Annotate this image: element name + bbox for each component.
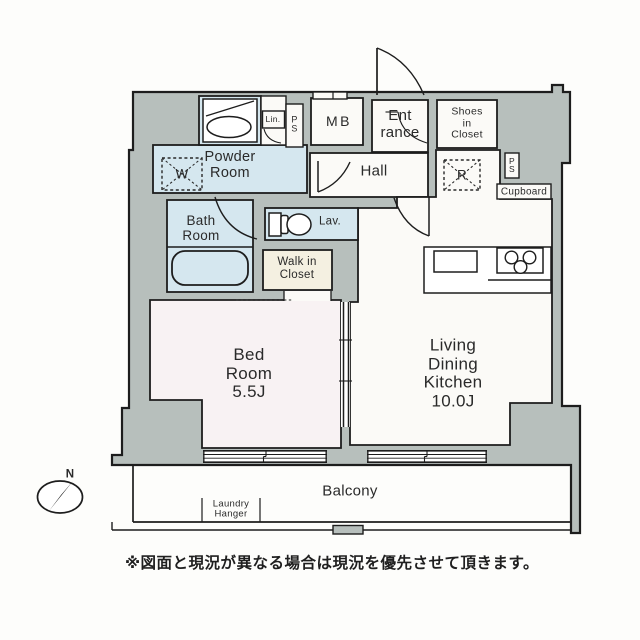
bathtub [172, 251, 248, 285]
label-meter-box: MB [326, 114, 352, 130]
window-ldk [367, 450, 487, 463]
label-washer: W [175, 166, 188, 181]
burner [514, 261, 527, 274]
label-bed-room: Bed Room 5.5J [226, 346, 273, 402]
label-linen: Lin. [266, 115, 281, 125]
label-powder-room: Powder Room [205, 149, 256, 181]
window-bedroom [203, 450, 327, 463]
kitchen-counter [424, 247, 551, 293]
label-balcony: Balcony [322, 484, 377, 501]
label-hall: Hall [360, 164, 387, 181]
vent-notch-above-mb [313, 92, 347, 99]
compass [38, 481, 83, 513]
label-bath-room: Bath Room [182, 213, 219, 243]
vanity-sink [207, 117, 251, 138]
balcony-drain [333, 526, 363, 535]
label-ldk: Living Dining Kitchen 10.0J [424, 337, 483, 412]
label-walk-in-closet: Walk in Closet [277, 256, 316, 282]
label-shoes-closet: Shoes in Closet [451, 107, 483, 142]
floor-plan-canvas [0, 0, 640, 640]
disclaimer-text: ※図面と現況が異なる場合は現況を優先させて頂きます。 [125, 551, 539, 573]
label-pipe-space-right: P S [509, 157, 515, 175]
label-cupboard: Cupboard [501, 186, 547, 197]
label-refrigerator: R [457, 167, 467, 182]
label-pipe-space-top: P S [291, 116, 297, 135]
label-compass-north: N [66, 468, 75, 481]
label-entrance: Ent rance [380, 108, 419, 142]
label-laundry-hanger: Laundry Hanger [213, 500, 249, 521]
floor-plan-page: Powder Room Hall Ent rance MB Shoes in C… [0, 0, 640, 640]
label-lavatory: Lav. [319, 216, 341, 229]
